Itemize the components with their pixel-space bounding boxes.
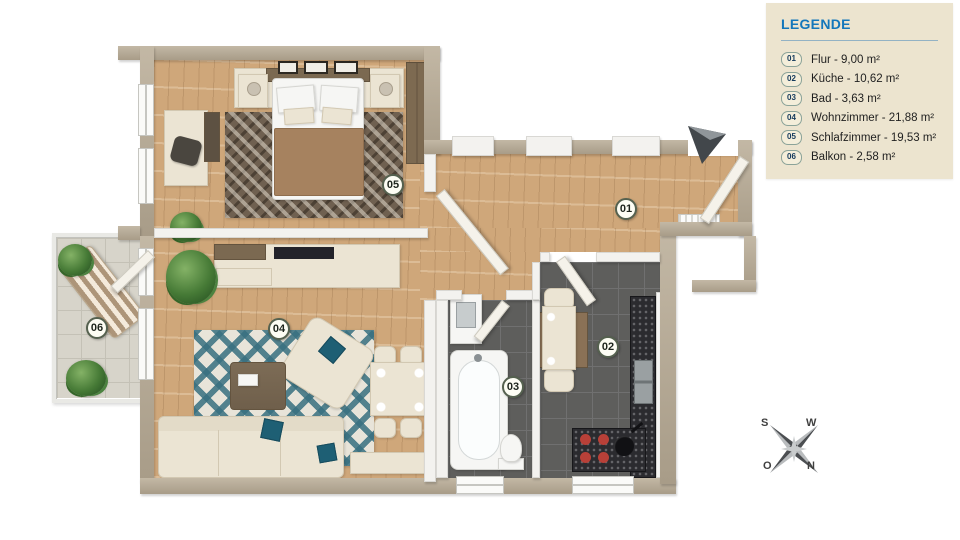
dining-chair-3 <box>374 418 396 438</box>
legend-item-label: Wohnzimmer - 21,88 m² <box>811 112 934 124</box>
sofa-cushion-divider-1 <box>218 430 219 476</box>
living-bench <box>350 452 434 474</box>
iwall-bath-left <box>436 300 448 478</box>
compass-label-o: O <box>763 460 772 472</box>
legend-item-label: Küche - 10,62 m² <box>811 73 899 85</box>
wall-art-frame-3 <box>334 61 358 74</box>
iwall-kitchen-top-right <box>596 252 660 262</box>
tv <box>274 247 334 259</box>
burner-4 <box>598 452 609 463</box>
kitchen-table <box>542 306 576 370</box>
window-bedroom-1 <box>138 84 154 136</box>
living-plant <box>166 250 216 304</box>
bed-blanket <box>274 128 364 196</box>
bathtub-basin <box>458 360 500 460</box>
window-kitchen <box>572 476 634 494</box>
coffee-table <box>230 362 286 410</box>
wall-bedroom-left <box>140 46 154 236</box>
entrance-arrow-icon <box>684 124 728 168</box>
room-badge-bad: 03 <box>502 376 524 398</box>
legend-item-schlafzimmer: 05 Schlafzimmer - 19,53 m² <box>781 128 938 148</box>
legend-item-label: Schlafzimmer - 19,53 m² <box>811 132 936 144</box>
legend-item-flur: 01 Flur - 9,00 m² <box>781 50 938 70</box>
iwall-kitchen-top-left <box>540 252 550 262</box>
legend-divider <box>781 40 938 41</box>
sink-basin <box>456 302 476 328</box>
burner-2 <box>598 434 609 445</box>
room-badge-schlafzimmer: 05 <box>382 174 404 196</box>
legend-item-bad: 03 Bad - 3,63 m² <box>781 89 938 109</box>
legend-title: LEGENDE <box>781 16 938 32</box>
kitchen-sink <box>634 360 653 404</box>
window-living <box>138 308 154 380</box>
hall-wall-pier-2 <box>526 136 572 156</box>
wall-art-frame-2 <box>304 61 328 74</box>
compass-rose: S W O N <box>748 408 840 492</box>
wall-kitchen-right <box>660 228 676 484</box>
bathtub-faucet <box>474 354 482 362</box>
legend-number-badge: 01 <box>781 52 802 67</box>
sideboard-shelf <box>214 244 266 260</box>
hall-wall-pier-3 <box>612 136 660 156</box>
compass-label-n: N <box>807 460 815 472</box>
dining-chair-4 <box>400 418 422 438</box>
room-badge-kueche: 02 <box>597 336 619 358</box>
legend-item-kueche: 02 Küche - 10,62 m² <box>781 70 938 90</box>
iwall-bath-top-left <box>436 290 462 300</box>
bed-accent-pillow-left <box>283 107 314 125</box>
iwall-living-right <box>424 300 436 482</box>
wall-bedroom-top <box>140 46 440 60</box>
legend-item-wohnzimmer: 04 Wohnzimmer - 21,88 m² <box>781 109 938 129</box>
legend-number-badge: 03 <box>781 91 802 106</box>
wall-bedroom-right-exterior <box>424 46 440 154</box>
lamp-left <box>247 82 261 96</box>
sofa-pillow-1 <box>260 418 284 442</box>
iwall-bath-kitchen <box>532 300 540 478</box>
floorplan: 01 02 03 04 05 06 <box>0 0 760 540</box>
legend-panel: LEGENDE 01 Flur - 9,00 m² 02 Küche - 10,… <box>766 3 953 179</box>
sideboard-cabinet <box>216 268 272 286</box>
dining-table <box>370 362 428 416</box>
iwall-corridor-kitchen <box>532 262 540 300</box>
wall-stub-balcony <box>118 226 140 240</box>
legend-number-badge: 04 <box>781 111 802 126</box>
legend-number-badge: 02 <box>781 72 802 87</box>
legend-item-balkon: 06 Balkon - 2,58 m² <box>781 148 938 168</box>
toilet <box>500 434 522 462</box>
burner-1 <box>580 434 591 445</box>
window-bedroom-2 <box>138 148 154 204</box>
wall-hall-bottom-right <box>660 222 752 236</box>
wall-stub-topleft <box>118 46 140 60</box>
legend-number-badge: 06 <box>781 150 802 165</box>
legend-item-label: Balkon - 2,58 m² <box>811 151 895 163</box>
legend-item-label: Bad - 3,63 m² <box>811 93 881 105</box>
legend-number-badge: 05 <box>781 130 802 145</box>
coffee-table-tray <box>238 374 258 386</box>
room-badge-flur: 01 <box>615 198 637 220</box>
legend-item-label: Flur - 9,00 m² <box>811 54 880 66</box>
balcony-plant-top <box>58 244 92 276</box>
compass-label-s: S <box>761 417 768 429</box>
kitchen-chair-bottom <box>544 368 574 392</box>
window-bath <box>456 476 504 494</box>
wall-art-frame-1 <box>278 61 298 74</box>
lamp-right <box>379 82 393 96</box>
room-badge-balkon: 06 <box>86 317 108 339</box>
pan <box>614 436 634 456</box>
iwall-bedroom-right <box>424 154 436 192</box>
sofa-pillow-2 <box>317 443 338 464</box>
wall-entrance-nook-h <box>692 280 756 292</box>
flur-corridor-upper <box>420 228 660 252</box>
hall-wall-pier-1 <box>452 136 494 156</box>
burner-3 <box>580 452 591 463</box>
compass-label-w: W <box>806 417 816 429</box>
iwall-bedroom-living <box>154 228 428 238</box>
balcony-plant-bottom <box>66 360 106 396</box>
room-badge-wohnzimmer: 04 <box>268 318 290 340</box>
desk-shelf <box>204 112 220 162</box>
floorplan-page: 01 02 03 04 05 06 LEGENDE 01 Flur - 9,00… <box>0 0 960 540</box>
bed-accent-pillow-right <box>321 107 352 126</box>
